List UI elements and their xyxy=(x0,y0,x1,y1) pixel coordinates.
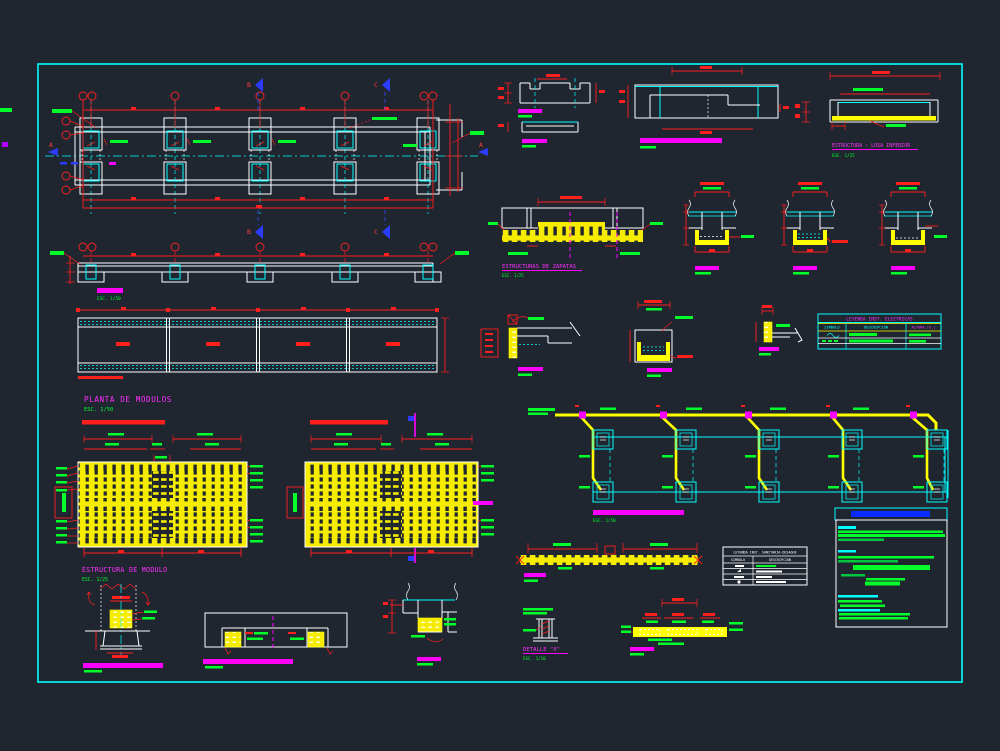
zapata-detail-2 xyxy=(781,182,848,275)
legend-electrica-title: LEYENDA INST. ELECTRICAS xyxy=(846,317,913,323)
detalle-x-scale: ESC. 1/10 xyxy=(523,656,546,661)
mid-detail-2 xyxy=(630,300,693,377)
col-simbolo: SIMBOLO xyxy=(824,326,839,330)
column-base-detail xyxy=(83,584,163,673)
col-descripcion: DESCRIPCION xyxy=(864,326,888,330)
module-left-right-labels xyxy=(247,465,263,543)
foundation-plan-drawing: B C A A xyxy=(45,78,488,214)
section-letter: B xyxy=(247,81,251,89)
electrical-scalebar: ESC. 1/50 xyxy=(593,510,684,523)
zapatas-scale: ESC. 1/25 xyxy=(502,273,524,278)
beam-detail-right xyxy=(621,598,743,656)
section-letter: C xyxy=(374,228,378,236)
losa-inferior-detail: ESTRUCTURA : LOSA INFERIOR ESC. 1/25 xyxy=(795,71,940,158)
foundation-elevation-drawing: ESC. 1/50 xyxy=(50,243,469,302)
zapata-detail-3 xyxy=(879,182,947,275)
mid-detail-1 xyxy=(481,315,580,376)
section-letter: A xyxy=(49,141,53,149)
estructura-modulo-title: ESTRUCTURA DE MODULO xyxy=(82,566,167,574)
notes-title-bar xyxy=(851,511,930,517)
legend-electrica-table: LEYENDA INST. ELECTRICAS SIMBOLO DESCRIP… xyxy=(818,314,941,349)
cad-sheet: B C A A ESC. 1/50 xyxy=(0,0,1000,751)
section-marker-a-left: A xyxy=(48,141,58,156)
planta-modulos-scale: ESC. 1/50 xyxy=(84,407,113,413)
section-marker-b-bottom: B xyxy=(247,210,263,239)
section-detail-b xyxy=(498,122,578,148)
section-detail-c xyxy=(619,66,789,149)
cad-canvas: B C A A ESC. 1/50 xyxy=(0,0,1000,751)
footing-elevation-detail xyxy=(203,613,347,669)
scale-text: ESC. 1/50 xyxy=(593,518,616,523)
zapatas-elevation: ESTRUCTURAS DE ZAPATAS ESC. 1/25 xyxy=(488,196,663,278)
losa-inferior-scale: ESC. 1/25 xyxy=(832,153,855,158)
notes-panel xyxy=(835,508,947,627)
planta-modulos-title: PLANTA DE MODULOS xyxy=(84,395,172,404)
section-marker-a-right: A xyxy=(478,141,488,156)
section-marker-b-top: B xyxy=(247,78,263,110)
section-marker-c-top: C xyxy=(374,78,390,110)
electrical-plan-drawing: ESC. 1/50 xyxy=(528,405,948,523)
estructura-modulo-right xyxy=(287,413,494,563)
legend-sanitaria-title: LEYENDA INST. SANITARIA-DESAGUE xyxy=(733,551,796,555)
planta-modulos-drawing: PLANTA DE MODULOS ESC. 1/50 xyxy=(76,307,449,413)
col-descripcion: DESCRIPCION xyxy=(769,558,791,562)
estructura-modulo-left: ESTRUCTURA DE MODULO ESC. 1/25 xyxy=(55,420,263,583)
section-letter: A xyxy=(479,141,483,149)
estructura-modulo-scale: ESC. 1/25 xyxy=(82,577,108,583)
losa-inferior-title: ESTRUCTURA : LOSA INFERIOR xyxy=(832,143,911,149)
detalle-x-title: DETALLE "X" xyxy=(523,647,560,653)
zapata-detail-1 xyxy=(683,182,754,275)
legend-sanitaria-table: LEYENDA INST. SANITARIA-DESAGUE SIMBOLO … xyxy=(723,547,807,585)
beam-detail-long xyxy=(516,543,702,582)
scale-text: ESC. 1/50 xyxy=(97,296,121,302)
conduit-drops xyxy=(582,418,933,490)
elevation-scalebar: ESC. 1/50 xyxy=(97,288,123,302)
section-letter: B xyxy=(247,228,251,236)
module-right-edge-labels xyxy=(478,465,494,536)
mid-detail-3 xyxy=(756,305,802,356)
zapatas-title: ESTRUCTURAS DE ZAPATAS xyxy=(502,264,576,270)
grid-bubbles-left xyxy=(62,117,84,194)
section-detail-a xyxy=(498,74,605,118)
module-left-edge-labels xyxy=(56,466,78,544)
grid-bubbles-elevation xyxy=(79,243,437,251)
sheet-frame xyxy=(38,64,962,682)
detalle-x-drawing: DETALLE "X" ESC. 1/10 xyxy=(523,608,568,661)
corner-section-detail xyxy=(383,583,458,666)
col-altura: ALTURA (h.) xyxy=(912,326,936,330)
col-simbolo: SIMBOLO xyxy=(731,558,745,562)
section-marker-c-bottom: C xyxy=(374,210,390,239)
section-letter: C xyxy=(374,81,378,89)
